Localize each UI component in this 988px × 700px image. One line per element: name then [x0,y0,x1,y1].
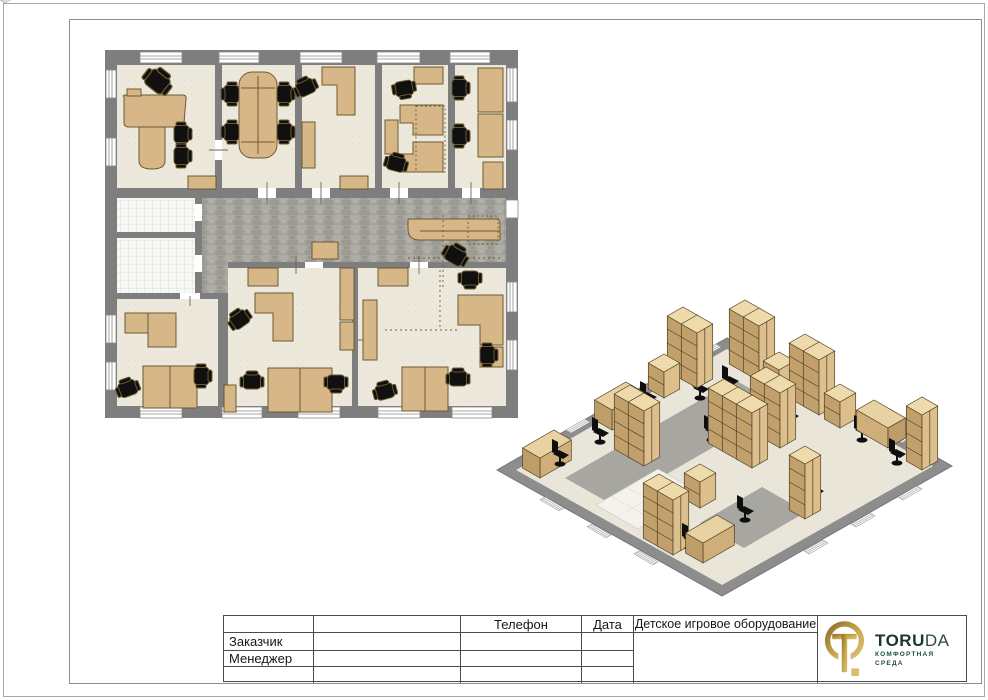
cell-empty [314,667,461,683]
date-header: Дата [582,616,634,633]
brand-light: DA [925,632,950,649]
cell-empty [224,667,314,683]
notes-area [634,633,818,683]
customer-label: Заказчик [224,633,314,651]
customer-date-field[interactable] [582,633,634,651]
cell-empty [224,616,314,633]
drawing-canvas [0,0,988,700]
manager-date-field[interactable] [582,651,634,667]
manager-phone-field[interactable] [461,651,582,667]
toruda-logo-text: TORUDA КОМФОРТНАЯ СРЕДА [875,632,949,667]
customer-value-field[interactable] [314,633,461,651]
cell-empty [582,667,634,683]
cell-empty [314,616,461,633]
phone-header: Телефон [461,616,582,633]
brand-bold: TORU [875,632,925,649]
customer-phone-field[interactable] [461,633,582,651]
drawing-sheet: Телефон Дата Детское игровое оборудовани… [0,0,988,700]
manager-label: Менеджер [224,651,314,667]
title-block: Телефон Дата Детское игровое оборудовани… [223,615,967,682]
toruda-logo-mark [823,620,869,680]
tagline-line1: КОМФОРТНАЯ [875,652,949,659]
company-logo: TORUDA КОМФОРТНАЯ СРЕДА [818,616,968,683]
manager-value-field[interactable] [314,651,461,667]
tagline-line2: СРЕДА [875,661,949,668]
cell-empty [461,667,582,683]
floor-plan-2d [105,50,518,418]
project-title: Детское игровое оборудование [634,616,818,633]
